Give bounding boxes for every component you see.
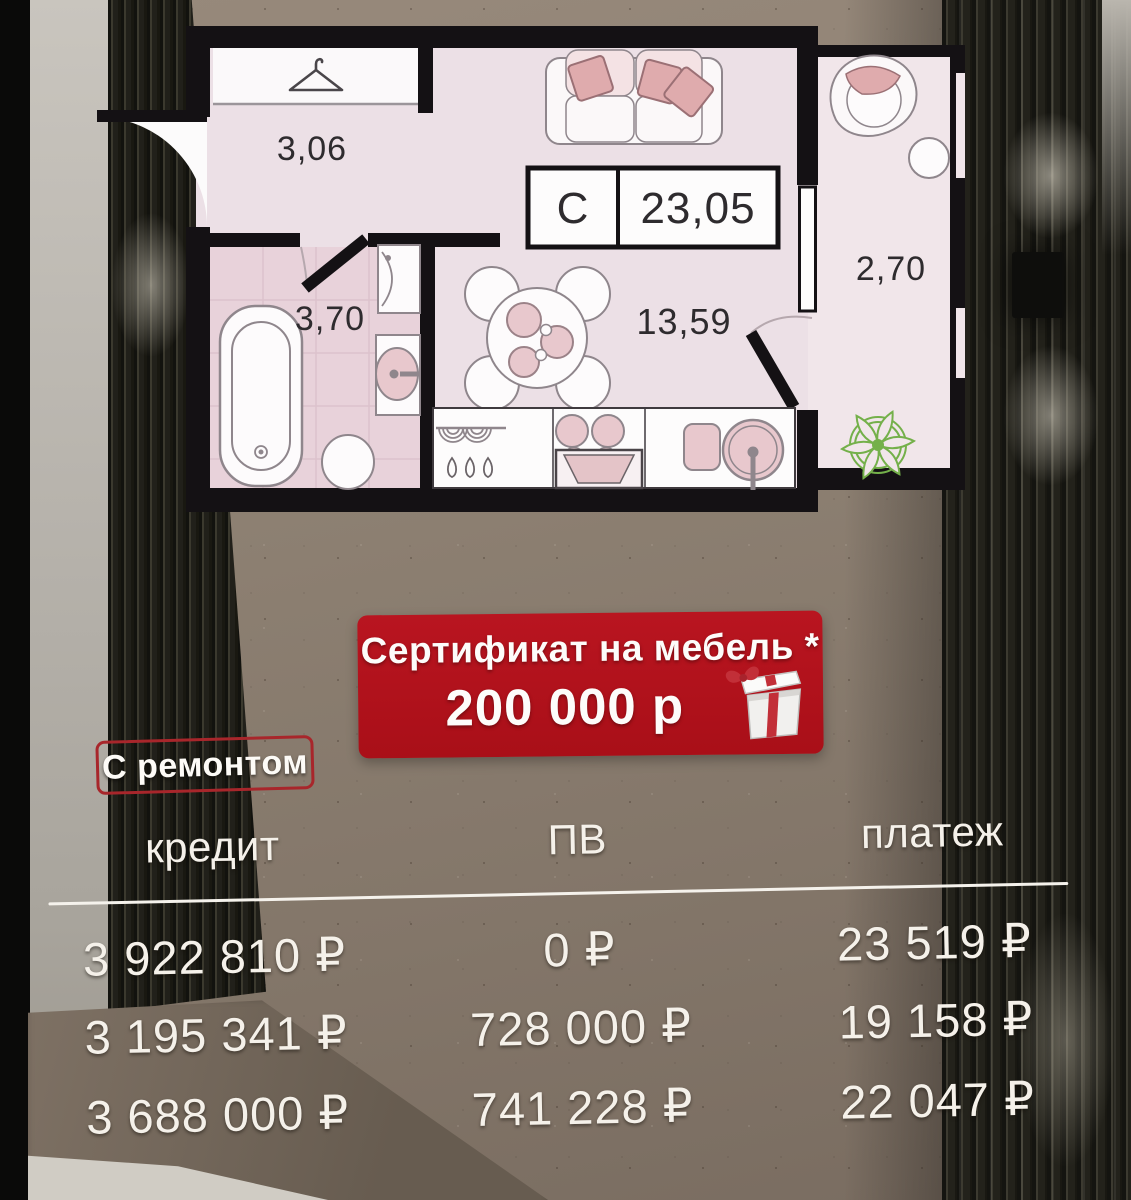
cell-down-payment: 741 228 ₽	[382, 1075, 783, 1141]
unit-label-box: С 23,05	[528, 168, 778, 247]
floor-plan: С 23,05	[60, 25, 966, 513]
utensils	[448, 458, 492, 477]
cell-credit: 3 688 000 ₽	[52, 1083, 383, 1148]
payment-table: кредит ПВ платеж 3 922 810 ₽ 0 ₽ 23 519 …	[47, 802, 1093, 1148]
gift-box-icon	[713, 654, 814, 753]
balcony-glazing-2	[956, 308, 965, 378]
renovation-badge-label: С ремонтом	[102, 743, 309, 788]
cell-payment: 19 158 ₽	[780, 989, 1091, 1053]
unit-total-area: 23,05	[640, 184, 755, 233]
cell-payment: 22 047 ₽	[782, 1069, 1093, 1133]
cell-down-payment: 728 000 ₽	[381, 995, 782, 1061]
area-label-balcony: 2,70	[856, 250, 926, 288]
cell-credit: 3 195 341 ₽	[51, 1003, 382, 1068]
bathtub	[220, 306, 302, 486]
lamp-glow-mid	[985, 318, 1117, 513]
sofa	[546, 50, 722, 144]
area-label-living: 13,59	[636, 301, 731, 342]
wall-black-left	[0, 0, 30, 1200]
balcony-glazing-1	[956, 73, 965, 178]
promo-screenshot: С 23,05	[0, 0, 1131, 1200]
cell-payment: 23 519 ₽	[779, 911, 1090, 975]
area-label-bathroom: 3,70	[295, 300, 365, 338]
toilet	[322, 435, 374, 489]
area-label-hallway: 3,06	[277, 130, 347, 168]
cell-down-payment: 0 ₽	[379, 917, 780, 983]
balcony-window	[800, 187, 816, 311]
cell-credit: 3 922 810 ₽	[49, 925, 380, 990]
closet	[213, 48, 420, 105]
table-row: 3 922 810 ₽ 0 ₽ 23 519 ₽	[49, 911, 1090, 990]
header-down-payment: ПВ	[377, 808, 778, 872]
entrance-door-swing	[97, 117, 207, 227]
header-divider	[48, 882, 1068, 905]
renovation-badge: С ремонтом	[95, 735, 314, 795]
right-edge-light	[1102, 0, 1131, 255]
cutting-board	[684, 424, 720, 470]
unit-type-label: С	[557, 184, 590, 233]
lamp-glow-top	[985, 88, 1117, 263]
wash-basin	[376, 335, 421, 415]
balcony-side-table	[909, 138, 949, 178]
promo-banner: Сертификат на мебель * 200 000 р	[357, 611, 823, 759]
header-credit: кредит	[47, 816, 378, 879]
washing-machine	[378, 245, 420, 313]
balcony-armchair	[831, 56, 917, 136]
oven	[556, 450, 642, 488]
header-payment: платеж	[777, 802, 1088, 864]
wall-lamp-icon	[1012, 252, 1064, 318]
kitchen-counter	[433, 408, 795, 490]
table-row: 3 195 341 ₽ 728 000 ₽ 19 158 ₽	[51, 989, 1092, 1068]
